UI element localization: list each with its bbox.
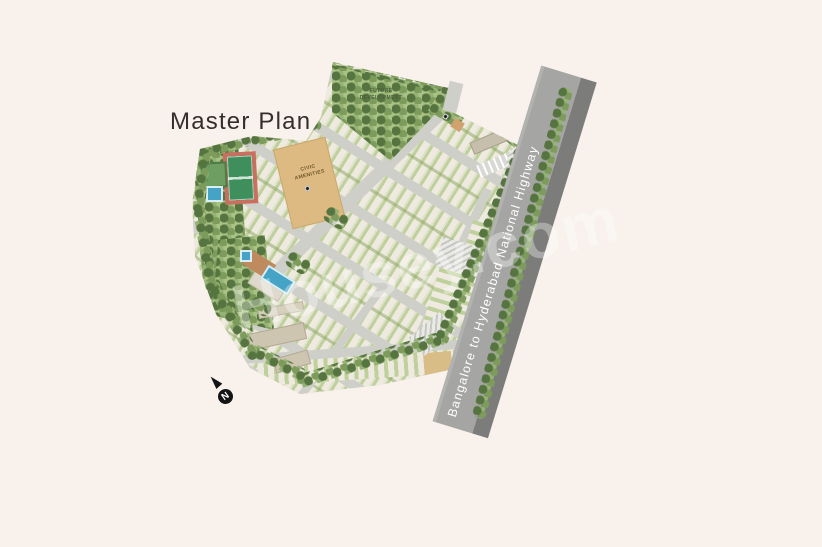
estate-area: FUTURE DEVELOPMENT CIVIC AMENITIES xyxy=(0,0,822,547)
future-development-label: FUTURE DEVELOPMENT xyxy=(358,88,404,102)
north-label: N xyxy=(220,390,232,403)
north-arrow-icon xyxy=(208,374,223,389)
page-title: Master Plan xyxy=(170,108,311,136)
north-badge: N xyxy=(215,386,236,407)
toddler-pool xyxy=(240,250,252,262)
kids-pool xyxy=(206,186,223,202)
master-plan-image: Master Plan xyxy=(0,0,822,547)
tennis-court xyxy=(223,151,259,205)
entrance-road xyxy=(443,81,464,113)
